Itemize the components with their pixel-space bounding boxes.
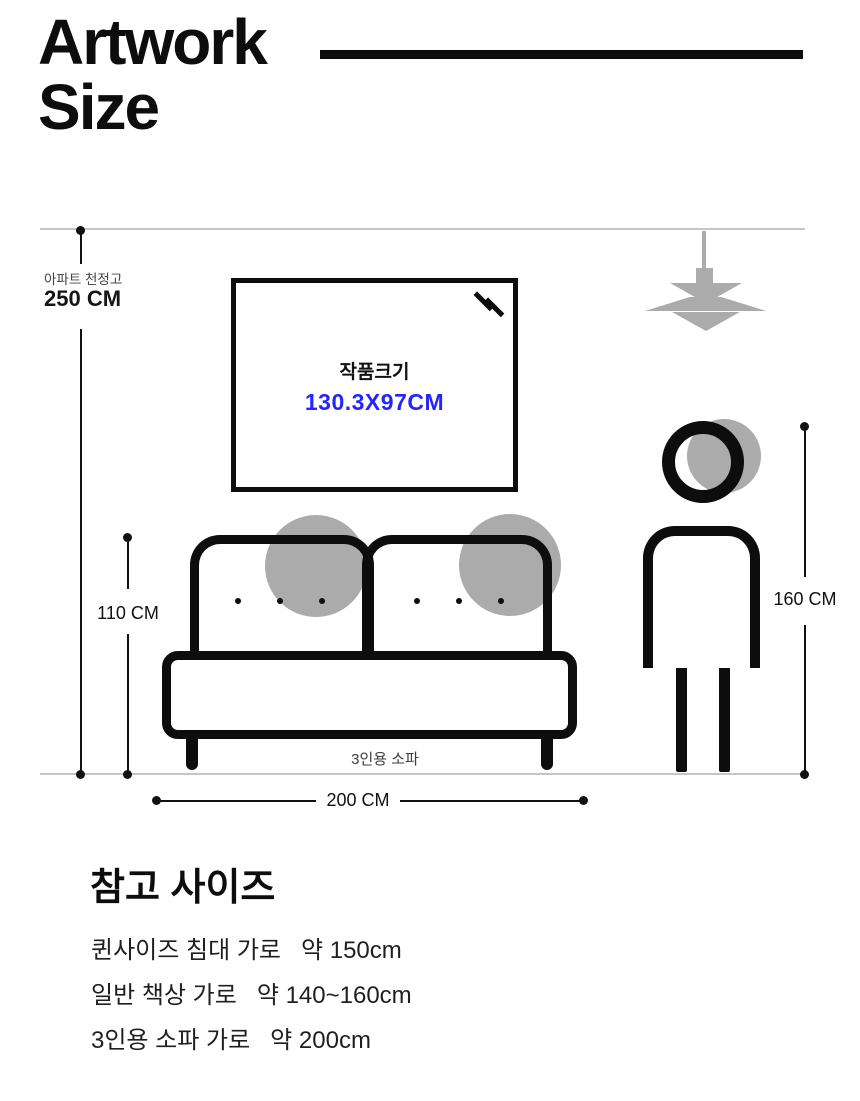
measure-line (127, 537, 129, 589)
sofa-label: 3인용 소파 (285, 748, 485, 769)
measure-line (156, 800, 316, 802)
page-title: Artwork Size (38, 10, 266, 140)
artwork-size-infographic: Artwork Size 아파트 천정고 250 CM 작품크기 130.3X9… (0, 0, 860, 1101)
title-rule (320, 50, 803, 59)
measure-line (804, 427, 806, 577)
artwork-label: 작품크기 (236, 357, 513, 384)
sofa-backrest-left (190, 535, 374, 657)
sofa-width-value: 200 CM (316, 790, 400, 810)
lamp-socket (696, 268, 713, 284)
sofa-seat (162, 651, 577, 739)
reference-item: 3인용 소파 가로 약 200cm (91, 1020, 371, 1055)
pendant-lamp-icon (645, 231, 766, 331)
lamp-shade-top (670, 283, 742, 298)
measure-line (80, 230, 82, 264)
sofa-backrest-right (362, 535, 552, 657)
person-height-value: 160 CM (766, 589, 844, 609)
measure-dot (123, 770, 132, 779)
sofa-button-dot (235, 598, 241, 604)
lamp-shade-bottom (672, 312, 740, 331)
ceiling-height-value: 250 CM (44, 286, 121, 312)
measure-line (400, 800, 584, 802)
person-leg-left (676, 668, 687, 772)
measure-dot (800, 770, 809, 779)
sofa-button-dot (498, 598, 504, 604)
ceiling-guide-line (40, 228, 805, 230)
floor-guide-line (40, 773, 805, 775)
person-torso (643, 526, 760, 668)
sofa-button-dot (277, 598, 283, 604)
measure-line (804, 625, 806, 775)
artwork-size-value: 130.3X97CM (236, 389, 513, 416)
lamp-rod (702, 231, 706, 270)
sofa-button-dot (414, 598, 420, 604)
measure-line (127, 634, 129, 775)
sofa-leg-left (186, 739, 198, 770)
measure-dot (579, 796, 588, 805)
measure-line (80, 329, 82, 775)
sofa-button-dot (319, 598, 325, 604)
reference-item: 일반 책상 가로 약 140~160cm (91, 975, 412, 1010)
sofa-button-dot (456, 598, 462, 604)
page-title-line2: Size (38, 75, 266, 140)
measure-dot (76, 770, 85, 779)
sofa-height-value: 110 CM (88, 603, 168, 623)
reference-heading: 참고 사이즈 (90, 856, 275, 911)
reference-item: 퀸사이즈 침대 가로 약 150cm (91, 930, 402, 965)
artwork-frame: 작품크기 130.3X97CM (231, 278, 518, 492)
ceiling-height-label: 아파트 천정고 (44, 268, 122, 288)
person-head-icon (662, 421, 744, 503)
sofa-leg-right (541, 739, 553, 770)
lamp-shade-middle (645, 297, 766, 311)
page-title-line1: Artwork (38, 10, 266, 75)
person-leg-right (719, 668, 730, 772)
